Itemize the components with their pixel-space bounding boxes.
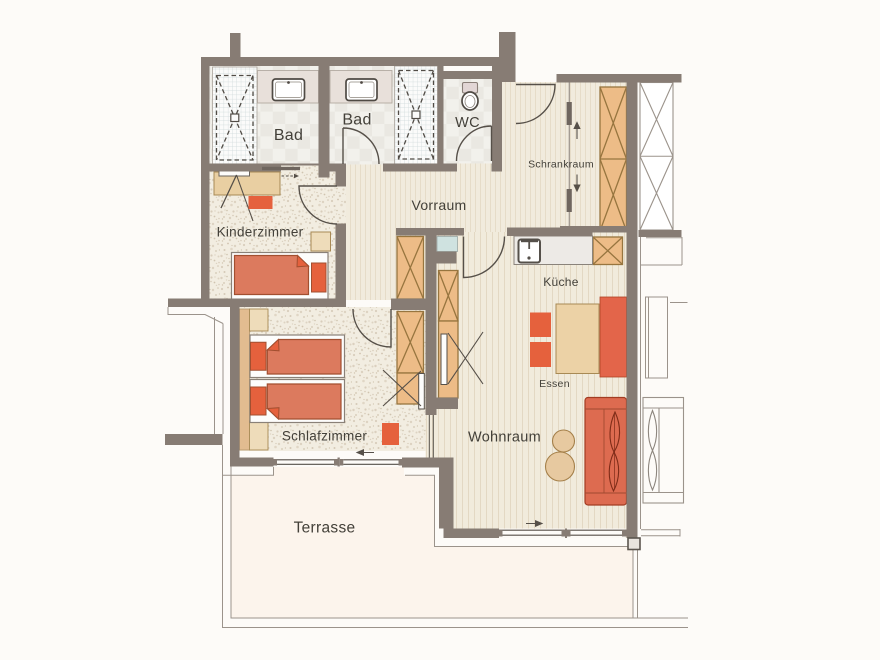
svg-text:Terrasse: Terrasse bbox=[294, 520, 356, 537]
svg-text:WC: WC bbox=[455, 115, 480, 131]
svg-text:Schlafzimmer: Schlafzimmer bbox=[282, 429, 368, 444]
svg-text:Küche: Küche bbox=[543, 275, 579, 289]
svg-text:Schrankraum: Schrankraum bbox=[528, 159, 594, 171]
svg-text:Essen: Essen bbox=[539, 378, 570, 390]
svg-text:Vorraum: Vorraum bbox=[411, 197, 466, 213]
svg-text:Wohnraum: Wohnraum bbox=[468, 430, 541, 446]
svg-text:Kinderzimmer: Kinderzimmer bbox=[217, 225, 304, 240]
svg-text:Bad: Bad bbox=[274, 127, 303, 144]
svg-text:Bad: Bad bbox=[342, 112, 371, 129]
